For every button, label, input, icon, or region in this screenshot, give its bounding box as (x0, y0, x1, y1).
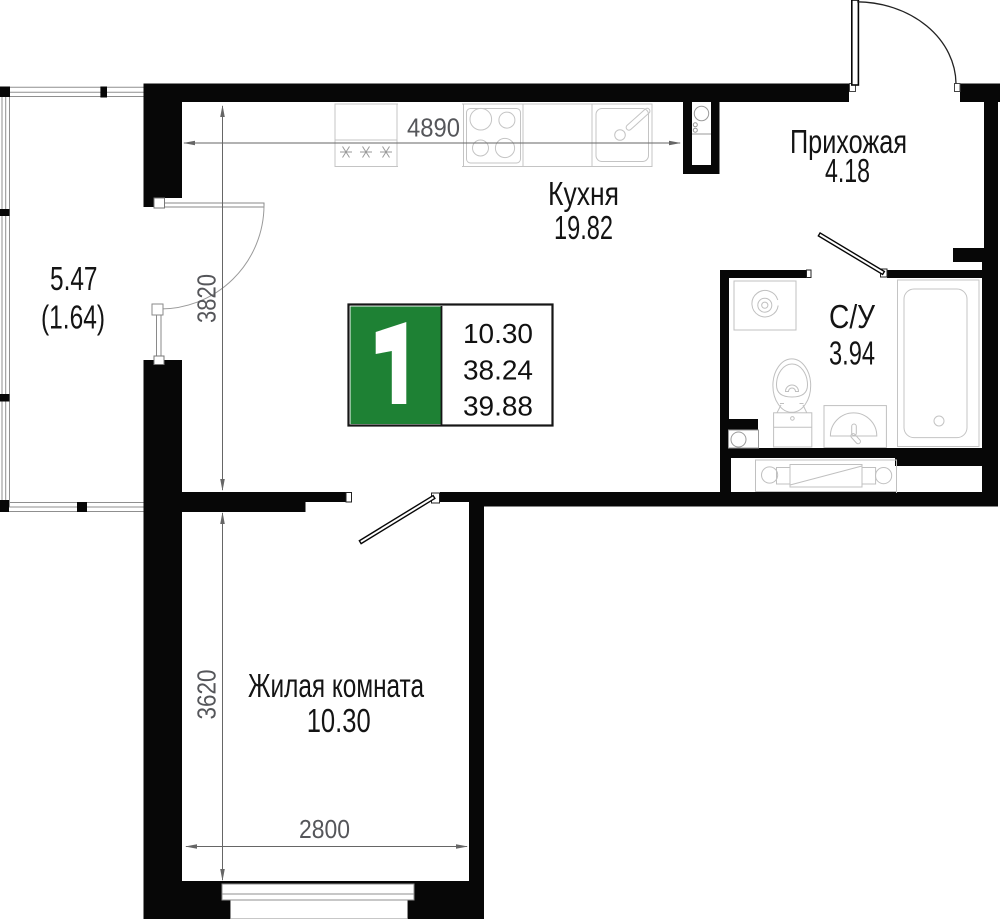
svg-text:5.47: 5.47 (50, 260, 98, 297)
svg-text:(1.64): (1.64) (41, 299, 105, 336)
svg-text:10.30: 10.30 (463, 318, 533, 349)
svg-text:3.94: 3.94 (829, 335, 875, 372)
svg-text:Жилая комната: Жилая комната (248, 667, 424, 704)
svg-text:4.18: 4.18 (825, 152, 870, 189)
svg-text:3820: 3820 (192, 274, 222, 323)
svg-text:С/У: С/У (829, 298, 876, 335)
svg-text:2800: 2800 (299, 814, 350, 844)
svg-text:3620: 3620 (192, 670, 222, 720)
svg-text:10.30: 10.30 (307, 702, 371, 739)
svg-text:38.24: 38.24 (463, 355, 533, 386)
svg-text:39.88: 39.88 (463, 391, 533, 422)
svg-text:19.82: 19.82 (554, 209, 613, 246)
svg-text:4890: 4890 (407, 113, 460, 143)
svg-text:Кухня: Кухня (548, 175, 619, 212)
